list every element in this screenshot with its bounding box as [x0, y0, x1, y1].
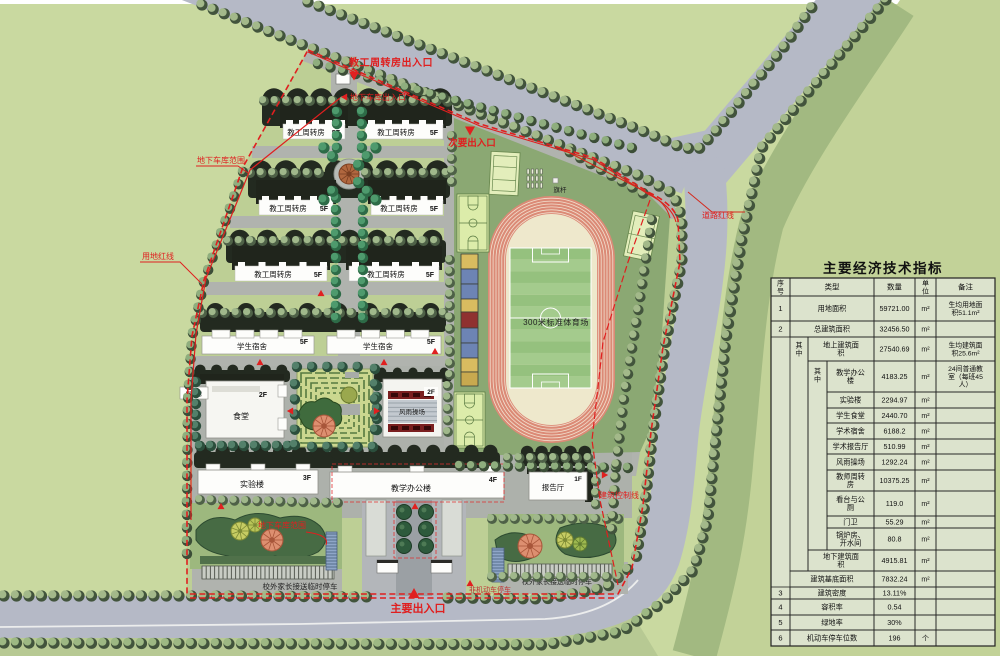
svg-text:实验楼: 实验楼 — [240, 479, 264, 489]
svg-text:类型: 类型 — [825, 282, 840, 292]
svg-text:24间普通教: 24间普通教 — [948, 364, 983, 373]
svg-text:27540.69: 27540.69 — [880, 345, 910, 354]
svg-text:主要出入口: 主要出入口 — [391, 601, 446, 615]
svg-text:学生宿舍: 学生宿舍 — [363, 341, 393, 351]
svg-text:教工周转房: 教工周转房 — [254, 269, 292, 279]
svg-text:0.54: 0.54 — [888, 603, 902, 612]
svg-text:人）: 人） — [959, 381, 973, 389]
svg-text:机动车停车位数: 机动车停车位数 — [807, 634, 857, 643]
svg-text:绿地率: 绿地率 — [821, 618, 843, 627]
svg-text:教工周转房: 教工周转房 — [380, 203, 418, 213]
svg-text:m²: m² — [921, 536, 930, 543]
svg-text:6: 6 — [778, 634, 782, 643]
svg-text:次要出入口: 次要出入口 — [448, 137, 496, 149]
svg-text:4: 4 — [778, 603, 782, 612]
svg-text:楼: 楼 — [847, 376, 854, 385]
svg-text:5F: 5F — [320, 206, 329, 213]
svg-text:5F: 5F — [430, 130, 439, 137]
svg-text:位: 位 — [922, 286, 929, 295]
svg-text:门卫: 门卫 — [843, 518, 857, 527]
svg-text:6188.2: 6188.2 — [884, 427, 906, 436]
svg-text:m²: m² — [921, 428, 930, 435]
svg-text:教工周转房: 教工周转房 — [377, 127, 415, 137]
svg-text:1F: 1F — [574, 476, 582, 483]
svg-text:2: 2 — [778, 325, 782, 334]
svg-text:教学办公楼: 教学办公楼 — [391, 483, 431, 493]
svg-text:m²: m² — [921, 413, 930, 420]
svg-text:30%: 30% — [887, 618, 902, 627]
svg-text:3: 3 — [778, 589, 782, 598]
svg-text:1: 1 — [778, 304, 782, 313]
svg-text:m²: m² — [921, 444, 930, 451]
svg-text:196: 196 — [889, 634, 901, 643]
svg-text:4915.81: 4915.81 — [882, 556, 908, 565]
svg-text:食堂: 食堂 — [233, 411, 249, 421]
svg-text:13.11%: 13.11% — [883, 589, 907, 598]
svg-text:主要经济技术指标: 主要经济技术指标 — [823, 260, 943, 276]
svg-text:室（每班45: 室（每班45 — [948, 372, 983, 381]
svg-text:5: 5 — [778, 618, 782, 627]
svg-text:学生食堂: 学生食堂 — [836, 411, 865, 420]
svg-text:m²: m² — [921, 478, 930, 485]
svg-text:实验楼: 实验楼 — [840, 396, 862, 405]
svg-text:510.99: 510.99 — [884, 442, 906, 451]
svg-text:容积率: 容积率 — [821, 603, 843, 612]
svg-text:5F: 5F — [426, 272, 435, 279]
svg-text:m²: m² — [921, 501, 930, 508]
svg-text:m²: m² — [921, 576, 930, 583]
svg-text:中: 中 — [814, 374, 821, 383]
svg-text:报告厅: 报告厅 — [542, 482, 565, 492]
svg-text:32456.50: 32456.50 — [880, 325, 910, 334]
svg-text:数量: 数量 — [887, 282, 902, 292]
svg-text:59721.00: 59721.00 — [880, 304, 910, 313]
svg-text:用地红线: 用地红线 — [142, 251, 174, 261]
svg-text:m²: m² — [921, 459, 930, 466]
svg-text:5F: 5F — [430, 206, 439, 213]
svg-text:m²: m² — [921, 397, 930, 404]
svg-text:用地面积: 用地面积 — [818, 304, 847, 313]
svg-text:其: 其 — [796, 341, 803, 349]
svg-text:m²: m² — [921, 326, 930, 333]
svg-text:积25.6m²: 积25.6m² — [952, 348, 981, 357]
svg-text:m²: m² — [921, 519, 930, 526]
svg-text:房: 房 — [847, 480, 854, 489]
svg-text:80.8: 80.8 — [888, 535, 902, 544]
svg-text:地下车库范围: 地下车库范围 — [258, 520, 306, 530]
svg-text:生均用地面: 生均用地面 — [949, 300, 983, 309]
svg-text:7832.24: 7832.24 — [882, 575, 908, 584]
svg-text:中: 中 — [796, 348, 803, 357]
svg-text:2294.97: 2294.97 — [882, 396, 908, 405]
svg-text:1292.24: 1292.24 — [882, 458, 908, 467]
svg-text:旗杆: 旗杆 — [554, 185, 568, 194]
svg-text:地下车库出入口: 地下车库出入口 — [350, 92, 406, 102]
svg-text:积: 积 — [837, 349, 844, 358]
svg-text:备注: 备注 — [958, 282, 973, 292]
svg-text:其: 其 — [814, 367, 821, 375]
svg-text:2F: 2F — [259, 392, 268, 399]
svg-text:总建筑面积: 总建筑面积 — [814, 325, 850, 334]
svg-text:4183.25: 4183.25 — [882, 372, 908, 381]
svg-text:学生宿舍: 学生宿舍 — [237, 341, 267, 351]
svg-text:300米标准体育场: 300米标准体育场 — [523, 317, 589, 327]
svg-text:5F: 5F — [427, 339, 436, 346]
svg-text:m²: m² — [921, 346, 930, 353]
svg-text:教工周转房: 教工周转房 — [367, 269, 405, 279]
svg-text:建筑密度: 建筑密度 — [818, 589, 847, 598]
svg-text:建筑控制线: 建筑控制线 — [599, 490, 639, 500]
svg-text:m²: m² — [921, 558, 930, 565]
svg-text:4F: 4F — [489, 477, 498, 484]
svg-text:学术宿舍: 学术宿舍 — [836, 427, 865, 436]
svg-text:教工周转房: 教工周转房 — [269, 203, 307, 213]
svg-text:厕: 厕 — [847, 503, 854, 512]
svg-text:序: 序 — [777, 278, 784, 287]
svg-text:风雨操场: 风雨操场 — [399, 407, 426, 416]
svg-text:地下车库范围: 地下车库范围 — [197, 155, 245, 165]
svg-text:生均建筑面: 生均建筑面 — [949, 340, 983, 349]
svg-text:教工周转房出入口: 教工周转房出入口 — [348, 56, 433, 69]
svg-text:2F: 2F — [427, 389, 435, 396]
svg-text:m²: m² — [921, 306, 930, 313]
svg-text:号: 号 — [777, 287, 784, 295]
svg-text:非机动车停车: 非机动车停车 — [469, 585, 511, 594]
svg-text:积51.1m²: 积51.1m² — [952, 308, 981, 317]
svg-text:校外家长接送临时停车: 校外家长接送临时停车 — [263, 581, 338, 591]
svg-text:开水间: 开水间 — [840, 539, 862, 548]
svg-text:5F: 5F — [314, 272, 323, 279]
svg-text:2440.70: 2440.70 — [882, 411, 908, 420]
svg-text:单: 单 — [922, 278, 929, 287]
svg-text:积: 积 — [837, 560, 844, 569]
svg-text:3F: 3F — [303, 475, 312, 482]
svg-text:119.0: 119.0 — [886, 499, 903, 508]
svg-text:m²: m² — [921, 374, 930, 381]
svg-text:个: 个 — [922, 634, 929, 642]
svg-text:55.29: 55.29 — [886, 518, 904, 527]
svg-text:10375.25: 10375.25 — [880, 476, 910, 485]
svg-text:道路红线: 道路红线 — [702, 210, 734, 220]
svg-text:建筑基底面积: 建筑基底面积 — [810, 575, 853, 584]
svg-text:风雨操场: 风雨操场 — [836, 458, 865, 467]
svg-text:学术报告厅: 学术报告厅 — [833, 442, 869, 451]
svg-text:5F: 5F — [300, 339, 309, 346]
